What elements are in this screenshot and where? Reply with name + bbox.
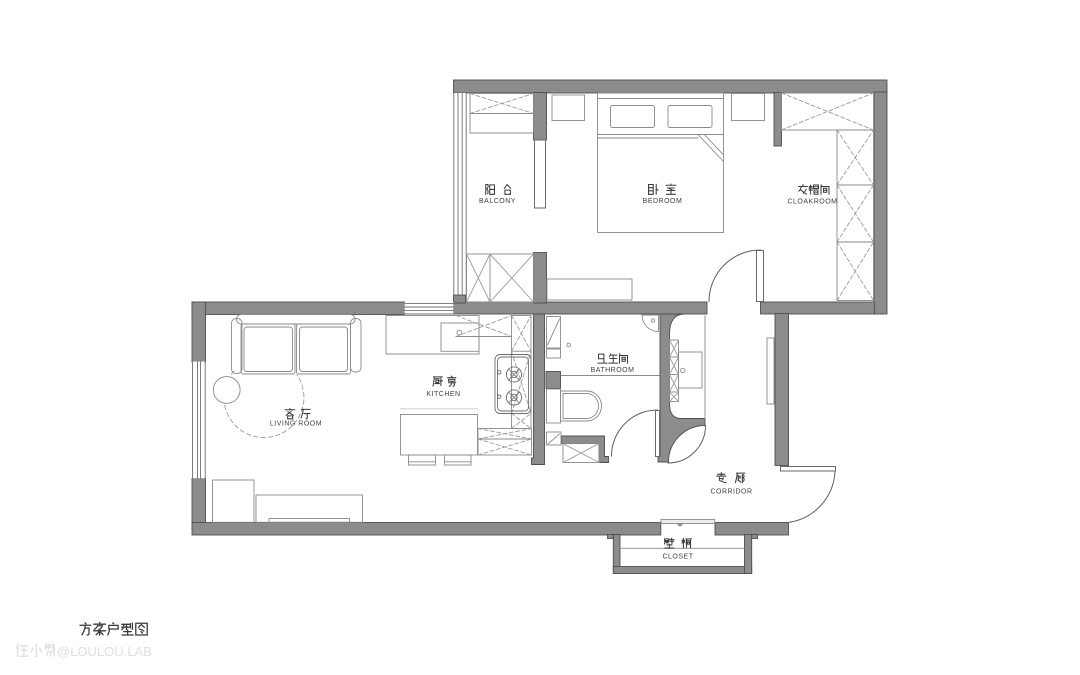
svg-text:BALCONY: BALCONY bbox=[479, 198, 516, 205]
svg-text:CLOAKROOM: CLOAKROOM bbox=[787, 199, 837, 206]
svg-text:CLOSET: CLOSET bbox=[662, 554, 693, 561]
svg-text:BEDROOM: BEDROOM bbox=[643, 198, 683, 205]
svg-text:LIVING ROOM: LIVING ROOM bbox=[270, 421, 322, 428]
svg-text:KITCHEN: KITCHEN bbox=[426, 391, 460, 398]
svg-text:CORRIDOR: CORRIDOR bbox=[710, 489, 752, 496]
svg-text:BATHROOM: BATHROOM bbox=[591, 367, 635, 374]
svg-text:@LOULOU.LAB: @LOULOU.LAB bbox=[57, 644, 152, 659]
